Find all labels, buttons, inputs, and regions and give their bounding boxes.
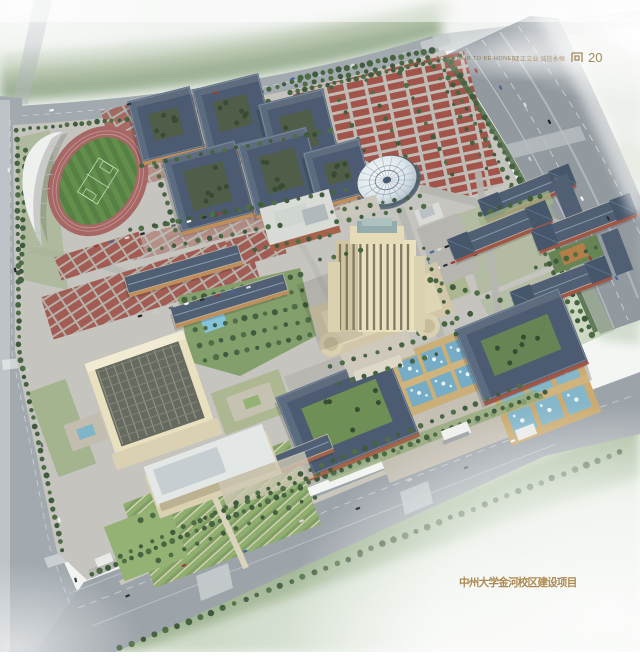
svg-text:中州大学金河校区建设项目: 中州大学金河校区建设项目 bbox=[459, 576, 577, 589]
svg-text:/公正立业 诚信永恒: /公正立业 诚信永恒 bbox=[512, 55, 565, 63]
svg-text:20: 20 bbox=[588, 50, 602, 65]
svg-text:TO BE FAIR TO BE HONEST: TO BE FAIR TO BE HONEST bbox=[436, 56, 520, 62]
